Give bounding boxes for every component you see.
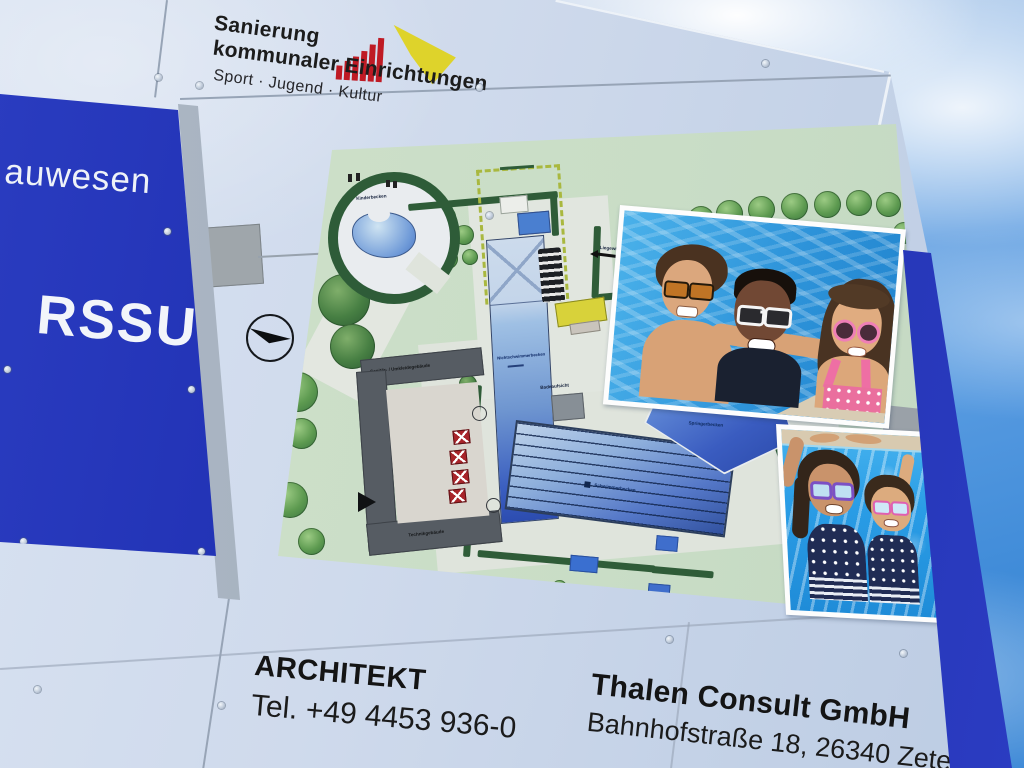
girl-a-swimsuit-stripes xyxy=(809,577,868,602)
kiddie-pool-notch xyxy=(368,206,390,222)
panel-seam xyxy=(0,611,908,670)
girl-a-goggles-icon xyxy=(832,482,855,501)
boy-left-sunglasses-icon xyxy=(688,282,714,301)
boy-middle-sunglasses-bridge xyxy=(760,310,766,314)
photo2-water xyxy=(781,429,940,618)
girl-a-goggles-icon xyxy=(810,481,833,500)
picnic-table xyxy=(451,469,469,485)
rivet xyxy=(666,636,673,643)
gate-symbol xyxy=(486,498,501,513)
label-smudge xyxy=(508,364,524,367)
girl-b-swimsuit-stripes xyxy=(869,586,920,605)
pool-connector xyxy=(647,583,670,599)
planner-block: Thalen Consult GmbH Bahnhofstraße 18, 26… xyxy=(585,668,963,768)
pool-steps xyxy=(487,236,546,306)
rivet xyxy=(486,212,493,219)
rivet xyxy=(762,60,769,67)
pool-connector xyxy=(517,211,551,236)
boy-middle-sunglasses-icon xyxy=(763,307,793,329)
pool-icon xyxy=(584,481,591,488)
boy-middle-sunglasses-icon xyxy=(736,304,766,326)
building-courtyard xyxy=(386,382,489,524)
picnic-table xyxy=(448,488,466,504)
rivet xyxy=(4,366,11,373)
architect-block: ARCHITEKT Tel. +49 4453 936-0 xyxy=(250,650,521,746)
rivet xyxy=(196,82,203,89)
slide-tower xyxy=(538,247,566,303)
label-schwimmerbecken: Schwimmerbecken xyxy=(594,483,636,493)
photo-children-underwater xyxy=(776,424,946,623)
program-logo: Sanierung kommunaler Einrichtungen Sport… xyxy=(190,2,502,155)
panel-seam xyxy=(154,0,167,97)
rivet xyxy=(198,548,205,555)
lifeguard-hut xyxy=(551,393,585,422)
construction-sign-photo: Sanierung kommunaler Einrichtungen Sport… xyxy=(0,0,1024,768)
picnic-table xyxy=(449,449,467,465)
girl-right-swimsuit xyxy=(822,384,882,413)
girl-b-goggles-icon xyxy=(891,501,910,516)
rivet xyxy=(155,74,162,81)
pool-connector xyxy=(655,535,678,552)
plan-small-rect xyxy=(499,195,528,214)
panel-seam xyxy=(202,598,230,768)
play-equipment-icon xyxy=(393,181,397,188)
rivet xyxy=(34,686,41,693)
rivet xyxy=(188,386,195,393)
play-equipment-icon xyxy=(348,174,352,182)
boy-left-sunglasses-icon xyxy=(663,280,689,299)
girl-right-swimsuit-strap xyxy=(861,360,871,390)
gate-symbol xyxy=(472,406,487,421)
pool-connector xyxy=(569,555,598,573)
rivet xyxy=(218,702,225,709)
rivet xyxy=(164,228,171,235)
rivet xyxy=(476,84,483,91)
photo1-water xyxy=(608,210,900,423)
side-sign-top-text: auwesen xyxy=(3,152,153,202)
entrance-arrow-icon xyxy=(358,492,376,512)
boy-left-smile xyxy=(676,305,699,318)
label-technikgebaeude: Technikgebäude xyxy=(408,529,444,538)
photo-children-pool-edge xyxy=(603,205,906,429)
play-equipment-icon xyxy=(386,180,390,187)
girl-a-smile xyxy=(825,504,844,515)
rivet xyxy=(900,650,907,657)
picnic-table xyxy=(452,429,470,445)
girl-b-smile xyxy=(884,519,899,528)
girl-b-goggles-icon xyxy=(873,500,892,515)
label-nichtschwimmerbecken: Nichtschwimmerbecken xyxy=(497,352,545,361)
play-equipment-icon xyxy=(356,173,360,181)
north-arrow-icon xyxy=(246,314,294,362)
liegewiese-arrowhead-icon xyxy=(590,250,598,258)
